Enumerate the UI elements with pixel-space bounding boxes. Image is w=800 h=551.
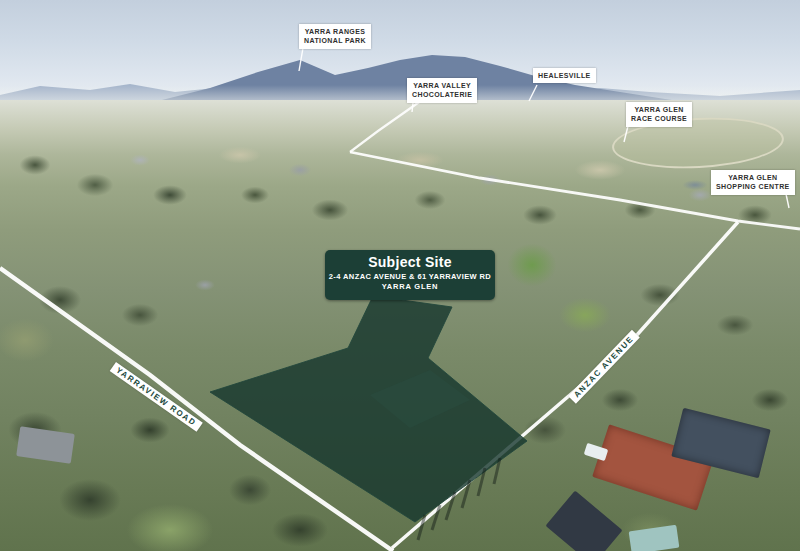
location-label-healesville: HEALESVILLE: [533, 68, 596, 83]
subject-site-callout: Subject Site 2-4 ANZAC AVENUE & 61 YARRA…: [325, 250, 495, 300]
aerial-site-map: YARRA RANGES NATIONAL PARK YARRA VALLEY …: [0, 0, 800, 551]
subject-site-address: 2-4 ANZAC AVENUE & 61 YARRAVIEW RD: [325, 272, 495, 282]
location-label-yarra-ranges-national-park: YARRA RANGES NATIONAL PARK: [299, 24, 371, 49]
subject-site-locality: YARRA GLEN: [325, 282, 495, 292]
location-label-yarra-valley-chocolaterie: YARRA VALLEY CHOCOLATERIE: [407, 78, 477, 103]
subject-site-title: Subject Site: [325, 254, 495, 270]
location-label-yarra-glen-shopping-centre: YARRA GLEN SHOPPING CENTRE: [711, 170, 795, 195]
location-label-yarra-glen-race-course: YARRA GLEN RACE COURSE: [626, 102, 692, 127]
road-line-distant: [350, 100, 422, 152]
